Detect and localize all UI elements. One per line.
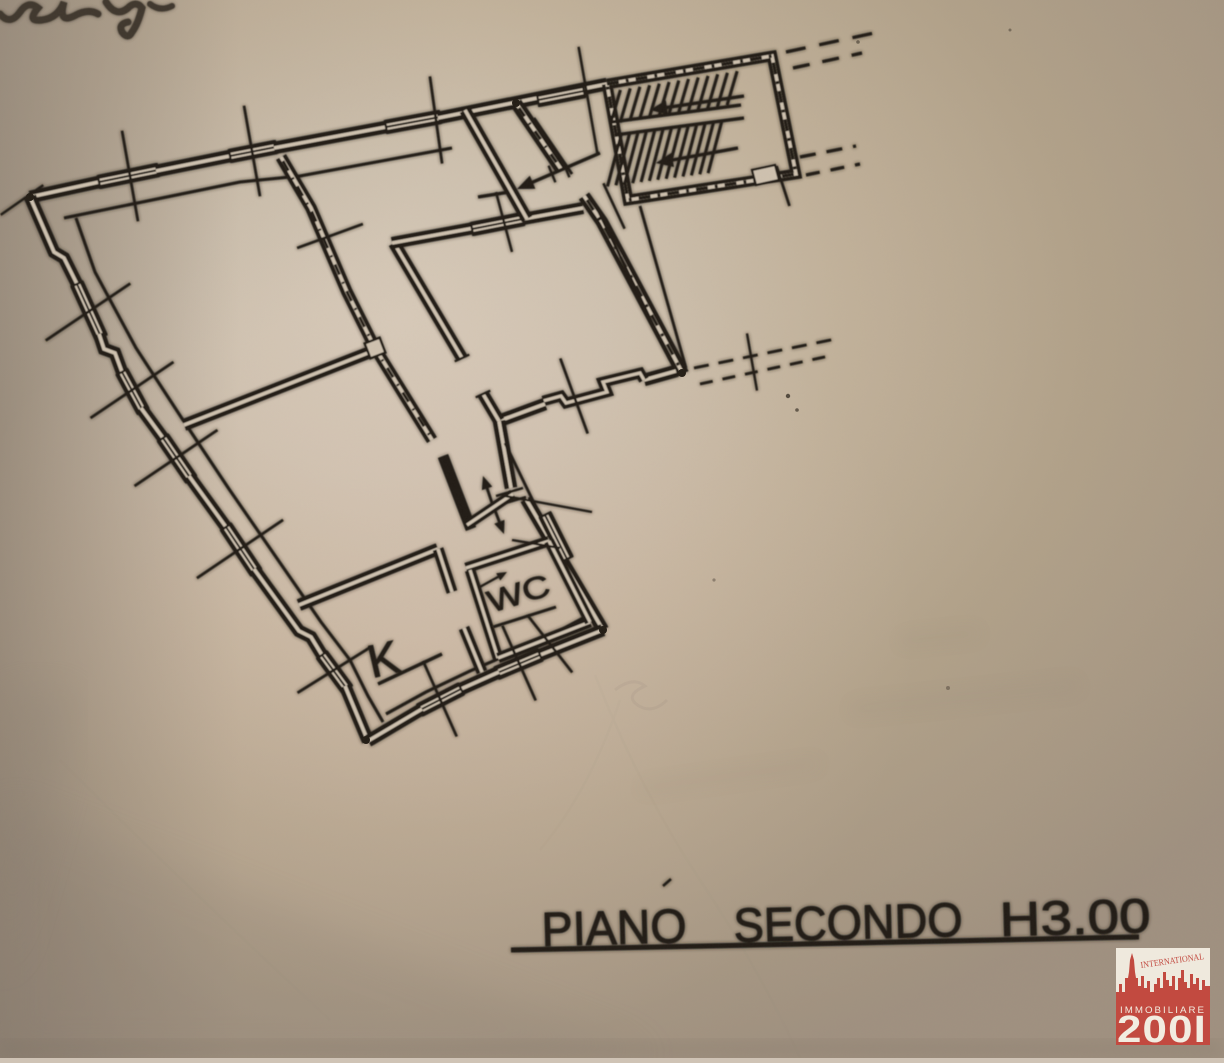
svg-text:200I: 200I bbox=[1117, 1009, 1207, 1051]
